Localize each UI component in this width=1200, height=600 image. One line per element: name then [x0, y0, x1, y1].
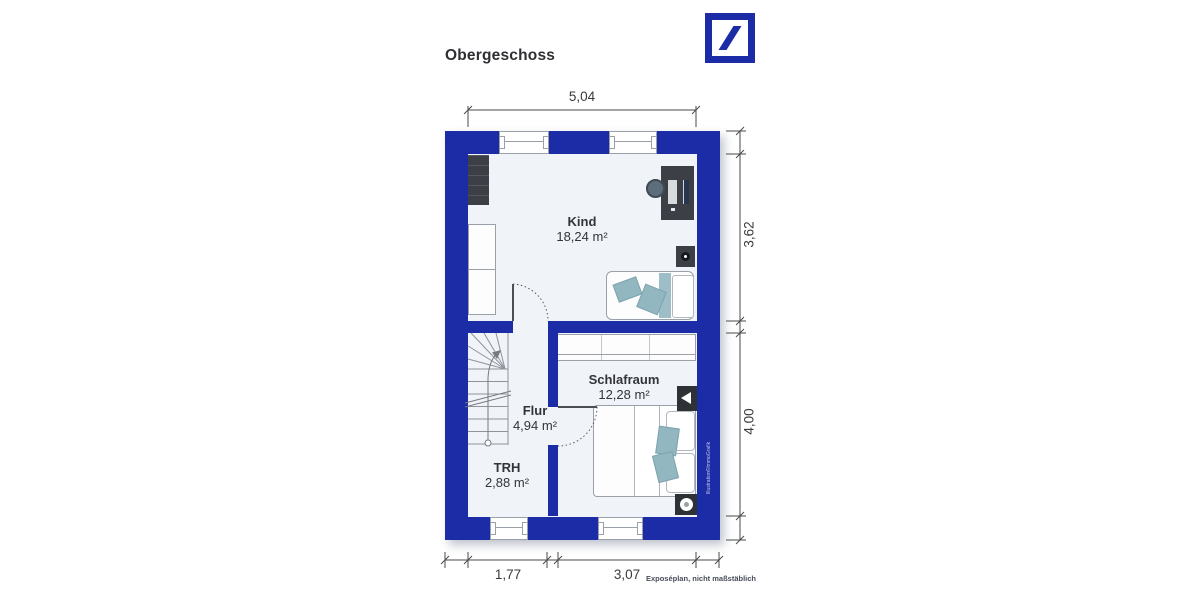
dim-bottom-left: 1,77	[486, 567, 530, 582]
page-title: Obergeschoss	[445, 47, 555, 65]
triangle-icon	[681, 392, 691, 404]
wall-tv-unit	[677, 386, 698, 411]
room-name: Kind	[537, 215, 627, 230]
monitor	[683, 180, 689, 204]
window	[609, 131, 657, 154]
dim-right-upper: 3,62	[742, 213, 757, 257]
cushion	[613, 276, 643, 302]
pillow	[672, 275, 694, 318]
wall-bottom	[445, 517, 720, 540]
desk	[661, 166, 694, 220]
room-area: 4,94 m²	[499, 419, 571, 434]
wall-left	[445, 131, 468, 540]
speaker-dot	[684, 502, 689, 507]
window	[490, 517, 528, 540]
window	[499, 131, 549, 154]
room-label-flur: Flur 4,94 m²	[499, 404, 571, 433]
room-area: 18,24 m²	[537, 230, 627, 245]
wall-middle-left	[445, 321, 513, 333]
room-label-kind: Kind 18,24 m²	[537, 215, 627, 244]
wardrobe-schlafraum	[553, 334, 696, 361]
wall-middle-right	[548, 321, 720, 333]
wardrobe-kind	[468, 224, 496, 315]
bed-kind	[606, 271, 694, 320]
footnote: Exposéplan, nicht maßstäblich	[600, 574, 756, 583]
mouse	[671, 208, 675, 211]
dim-top-width: 5,04	[560, 89, 604, 104]
nightstand-kind	[676, 246, 695, 267]
keyboard	[668, 180, 677, 204]
window	[598, 517, 643, 540]
wall-flur-upper	[548, 321, 558, 407]
room-label-trh: TRH 2,88 m²	[471, 461, 543, 490]
deutsche-bank-logo-icon	[705, 13, 755, 63]
illustrator-credit: Illustration©ImmoGrafik	[706, 442, 712, 494]
wall-flur-lower	[548, 445, 558, 516]
lamp-light	[684, 255, 687, 258]
room-area: 12,28 m²	[569, 388, 679, 403]
room-name: Schlafraum	[569, 373, 679, 388]
room-name: TRH	[471, 461, 543, 476]
room-name: Flur	[499, 404, 571, 419]
office-chair	[646, 179, 665, 198]
room-label-schlafraum: Schlafraum 12,28 m²	[569, 373, 679, 402]
shelf-unit	[468, 155, 489, 205]
room-area: 2,88 m²	[471, 476, 543, 491]
wall-top	[445, 131, 720, 154]
dim-right-lower: 4,00	[742, 400, 757, 444]
bed-schlafraum	[593, 405, 696, 497]
speaker-unit	[675, 494, 698, 515]
floorplan-page: Obergeschoss	[0, 0, 1200, 600]
